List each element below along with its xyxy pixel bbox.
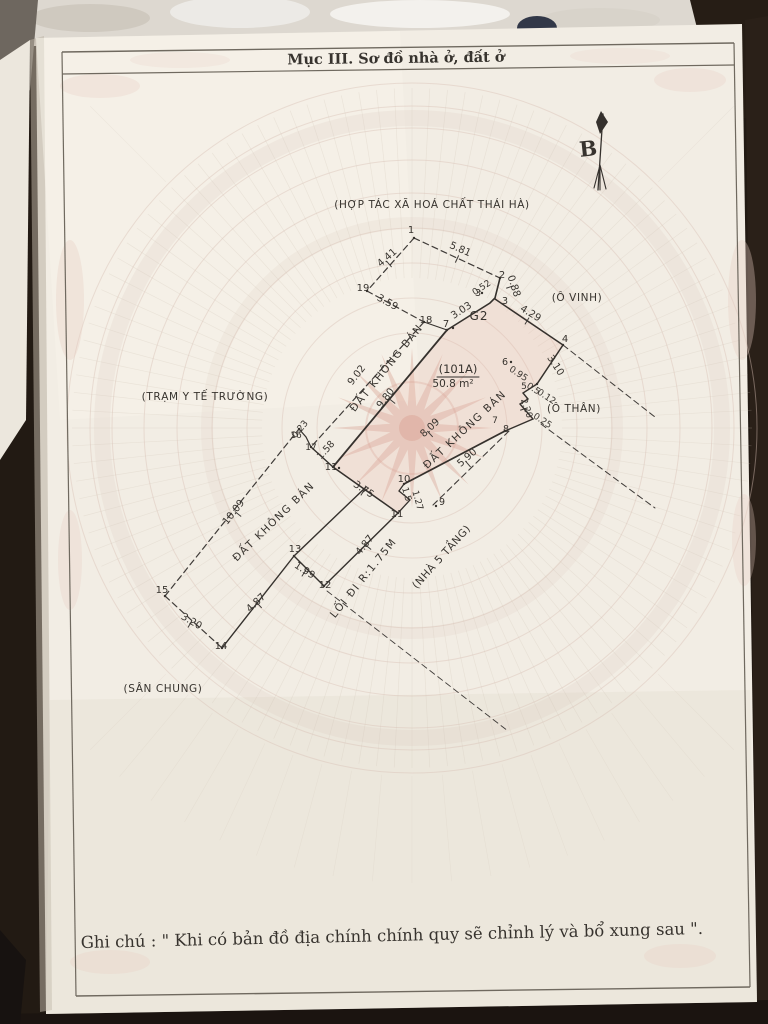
point-number-label: 11 <box>325 462 338 473</box>
region-label: (SÂN CHUNG) <box>124 682 203 695</box>
vertex-dot <box>413 237 415 239</box>
point-number-label: 11 <box>391 509 404 520</box>
region-label: (Ô VINH) <box>552 291 603 304</box>
point-number-label: 4 <box>562 334 568 345</box>
parcel-label: G2 <box>470 309 489 323</box>
document-canvas: Mục III. Sơ đồ nhà ở, đất ở B <box>0 0 768 1024</box>
point-number-label: 15 <box>156 585 169 596</box>
point-number-label: 10 <box>398 474 411 485</box>
point-number-label: 7 <box>443 319 449 330</box>
vertex-dot <box>293 555 295 557</box>
photographed-document: Mục III. Sơ đồ nhà ở, đất ở B <box>0 0 768 1024</box>
booklet-page-edge <box>0 40 30 460</box>
vertex-dot <box>435 505 437 507</box>
region-label: (Ô THÂN) <box>547 402 601 415</box>
parcel-label: 50.8 m² <box>432 378 473 390</box>
point-number-label: 3 <box>475 288 481 299</box>
point-number-label: 2 <box>499 270 505 281</box>
plastic-fold <box>30 4 150 32</box>
point-number-label: 6 <box>502 357 508 368</box>
page-title: Mục III. Sơ đồ nhà ở, đất ở <box>287 48 506 69</box>
point-number-label: 7 <box>492 416 498 426</box>
point-number-label: 3 <box>502 296 508 307</box>
point-number-label: 19 <box>357 283 370 294</box>
vertex-dot <box>510 361 512 363</box>
vertex-dot <box>452 327 454 329</box>
region-label: (HỢP TÁC XÃ HOÁ CHẤT THÁI HÀ) <box>334 197 529 211</box>
point-number-label: 13 <box>289 544 302 555</box>
point-number-label: 5 <box>521 382 527 392</box>
plastic-fold <box>330 0 510 28</box>
point-number-label: 14 <box>215 641 228 652</box>
vertex-dot <box>338 467 340 469</box>
point-number-label: 12 <box>319 580 332 591</box>
parcel-label: (101A) <box>439 362 478 376</box>
point-number-label: 9 <box>439 497 445 508</box>
point-number-label: 18 <box>420 315 433 326</box>
point-number-label: 16 <box>290 431 302 441</box>
point-number-label: 17 <box>305 443 316 453</box>
point-number-label: 1 <box>408 225 414 236</box>
north-label: B <box>578 135 598 162</box>
region-label: (TRẠM Y TẾ TRƯỜNG) <box>142 389 269 403</box>
point-number-label: 8 <box>503 424 509 435</box>
